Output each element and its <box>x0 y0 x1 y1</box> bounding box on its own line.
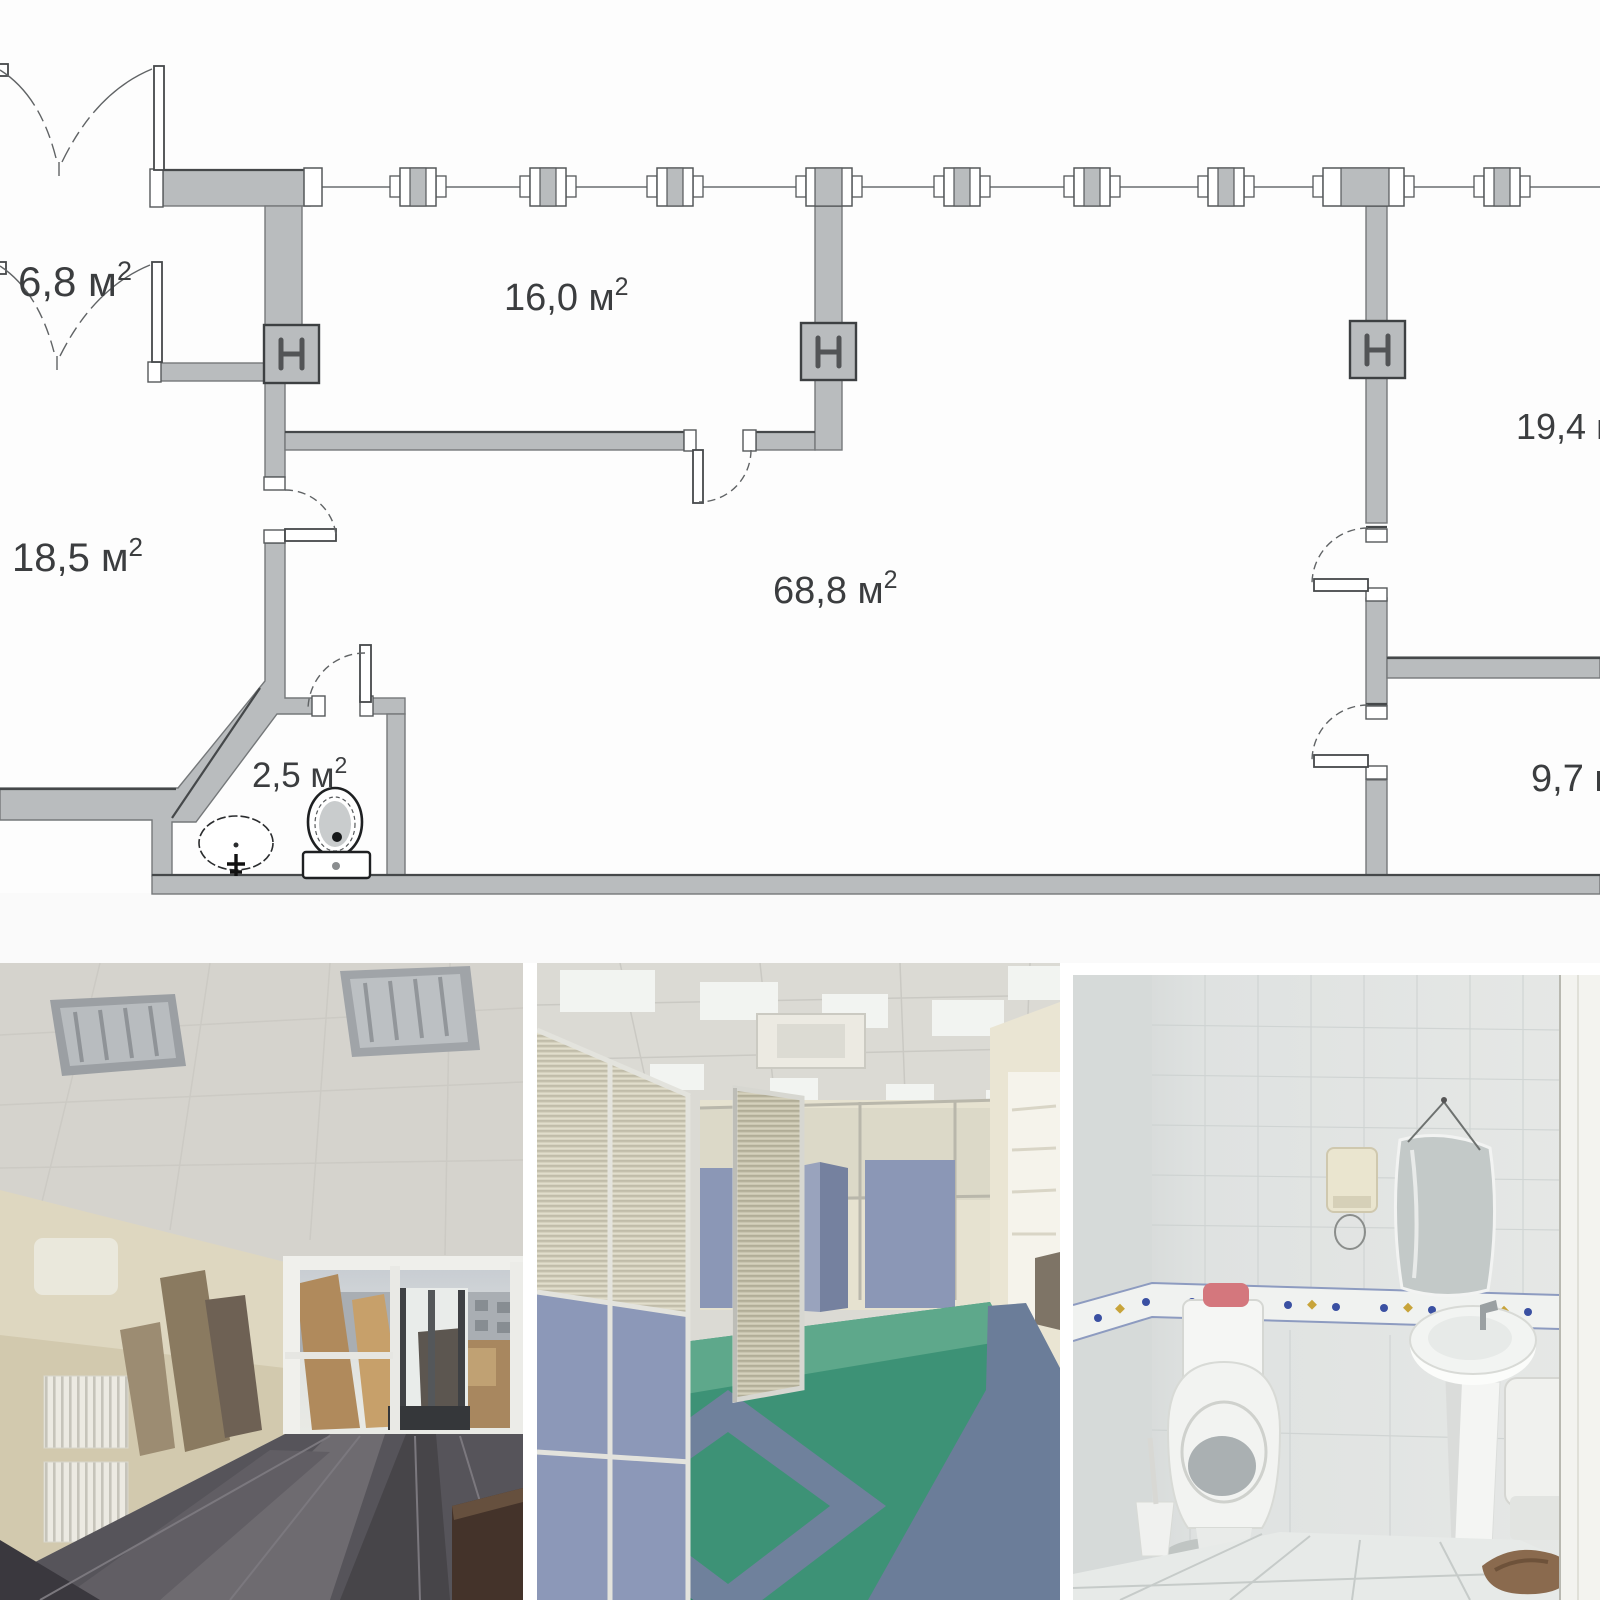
svg-text:6,8 м2: 6,8 м2 <box>18 256 132 305</box>
svg-text:18,5 м2: 18,5 м2 <box>12 532 143 580</box>
svg-text:19,4 м2: 19,4 м2 <box>1516 403 1600 447</box>
svg-text:2,5 м2: 2,5 м2 <box>252 752 347 795</box>
svg-text:9,7 м2: 9,7 м2 <box>1531 754 1600 800</box>
svg-text:16,0 м2: 16,0 м2 <box>504 273 629 319</box>
svg-text:68,8 м2: 68,8 м2 <box>773 566 898 612</box>
